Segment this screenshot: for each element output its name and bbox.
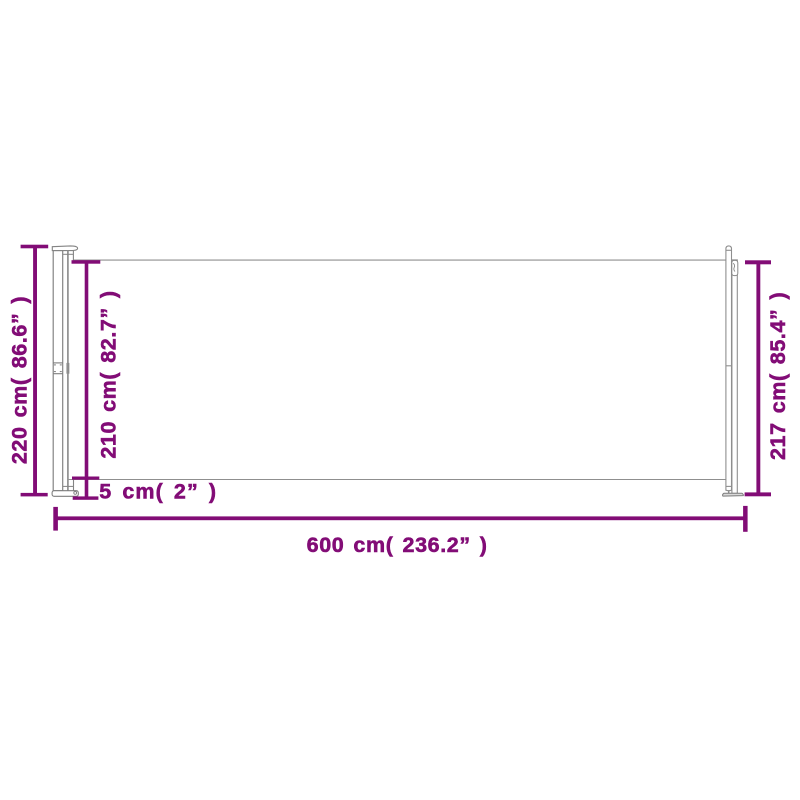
svg-text:210 cm( 82.7” ): 210 cm( 82.7” ): [97, 290, 121, 458]
svg-text:600 cm( 236.2” ): 600 cm( 236.2” ): [307, 533, 488, 557]
svg-text:217 cm( 85.4” ): 217 cm( 85.4” ): [766, 292, 790, 460]
svg-text:5 cm( 2” ): 5 cm( 2” ): [99, 479, 217, 503]
svg-text:220 cm( 86.6” ): 220 cm( 86.6” ): [8, 296, 32, 464]
